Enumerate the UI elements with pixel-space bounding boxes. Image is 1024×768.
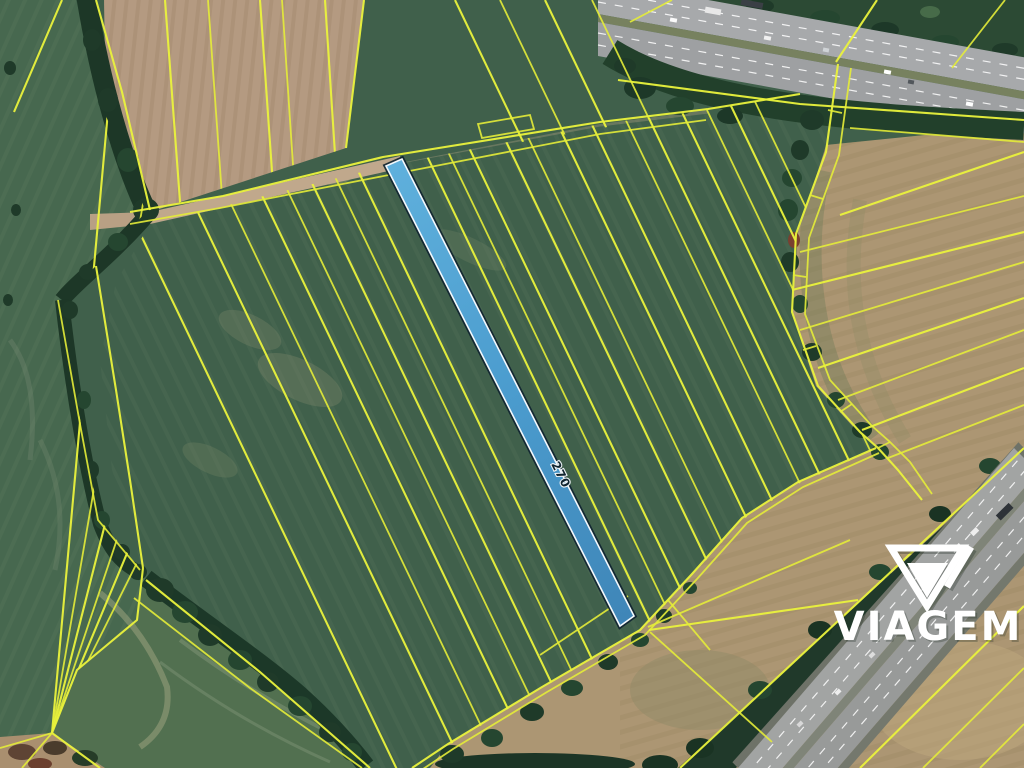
satellite-map[interactable]: 270 VIAGEM VIAGEM: [0, 0, 1024, 768]
red-bush: [788, 232, 800, 248]
viagem-text: VIAGEM: [834, 604, 1023, 650]
map-viewport[interactable]: 270 VIAGEM VIAGEM: [0, 0, 1024, 768]
